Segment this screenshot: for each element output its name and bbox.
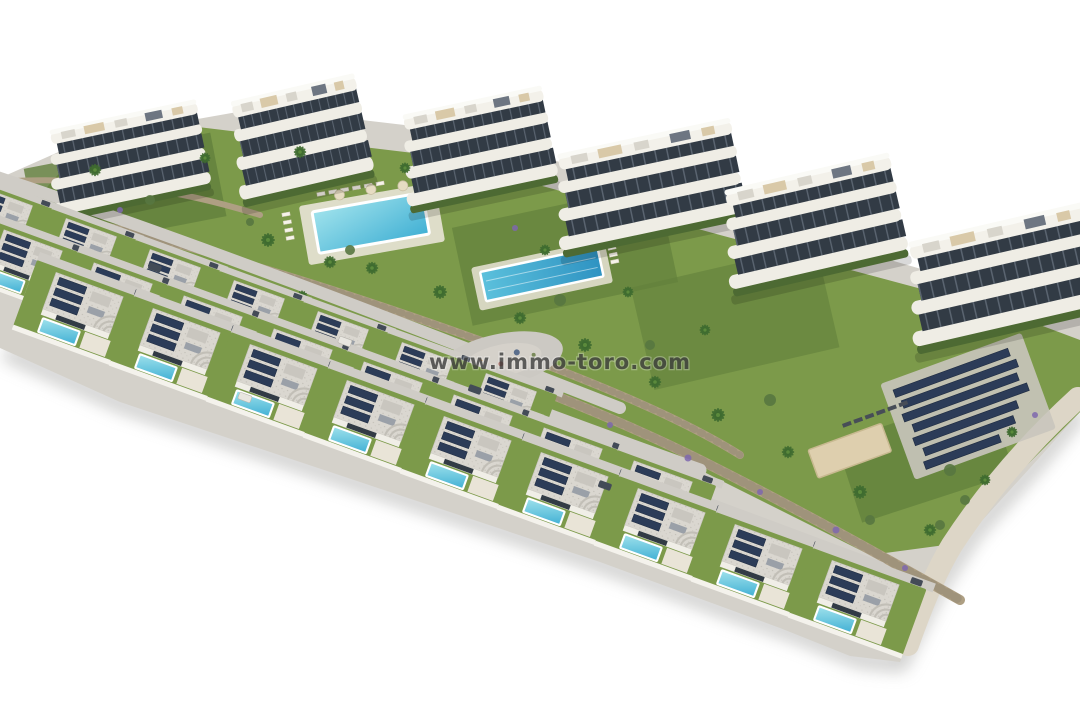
- watermark-text: www.immo-toro.com: [429, 350, 691, 374]
- property-aerial-render: www.immo-toro.com: [0, 0, 1080, 720]
- render-canvas: www.immo-toro.com: [0, 0, 1080, 720]
